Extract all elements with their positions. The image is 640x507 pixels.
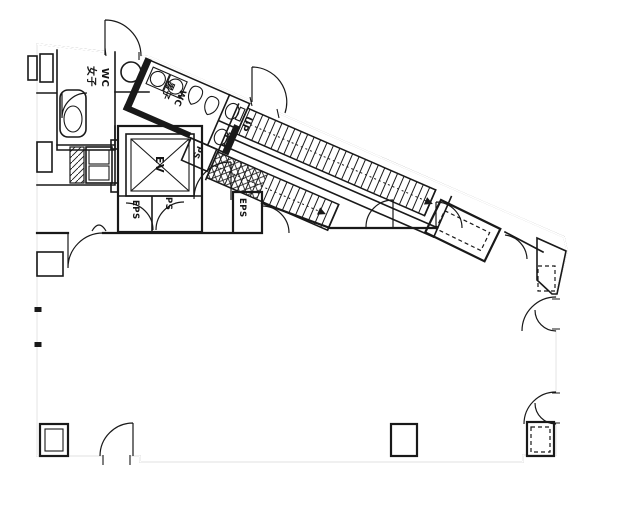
bottom-edge bbox=[37, 252, 554, 456]
door-arc bbox=[100, 423, 133, 456]
wall-notch bbox=[28, 56, 37, 80]
double-swing-mark bbox=[92, 225, 106, 231]
urinal-icon bbox=[201, 95, 220, 118]
door-arc bbox=[68, 233, 103, 268]
cabinet bbox=[86, 147, 112, 183]
wall-pier bbox=[37, 142, 52, 172]
floor-plan-page: 女子 WC 男子 WC PS bbox=[0, 0, 640, 507]
locker bbox=[40, 54, 53, 82]
door-arc bbox=[522, 297, 556, 331]
shaft-label-ps: PS bbox=[163, 197, 173, 210]
dashed-mat bbox=[436, 211, 490, 251]
column-dashed bbox=[531, 427, 550, 452]
room-label-mens-en: WC bbox=[171, 88, 187, 108]
stairs: UP bbox=[206, 104, 451, 272]
column bbox=[391, 424, 417, 456]
shaft-label-eps: EPS bbox=[130, 200, 140, 220]
shaft-label-eps-corridor: EPS bbox=[237, 198, 247, 218]
elevator-label: EV bbox=[153, 156, 166, 173]
room-label-womens-en: WC bbox=[99, 68, 110, 87]
outer-wall bbox=[28, 44, 567, 465]
duct-shaft-hatch bbox=[70, 147, 84, 183]
elevator-block: EV EPS PS bbox=[111, 126, 202, 232]
door-arc bbox=[505, 235, 527, 259]
floor-plan-canvas: 女子 WC 男子 WC PS bbox=[0, 0, 640, 507]
urinal-icon bbox=[185, 84, 204, 107]
wall-pier bbox=[37, 252, 63, 276]
door-arc bbox=[62, 93, 87, 118]
room-womens-wc: 女子 WC bbox=[37, 50, 149, 185]
cabinet-shelf bbox=[89, 150, 109, 164]
window-mark bbox=[35, 342, 42, 347]
room-label-womens-jp: 女子 bbox=[85, 66, 98, 87]
window-mark bbox=[35, 307, 42, 312]
door-arc bbox=[524, 392, 556, 424]
column-dashed bbox=[538, 266, 555, 291]
cabinet-shelf bbox=[89, 166, 109, 180]
